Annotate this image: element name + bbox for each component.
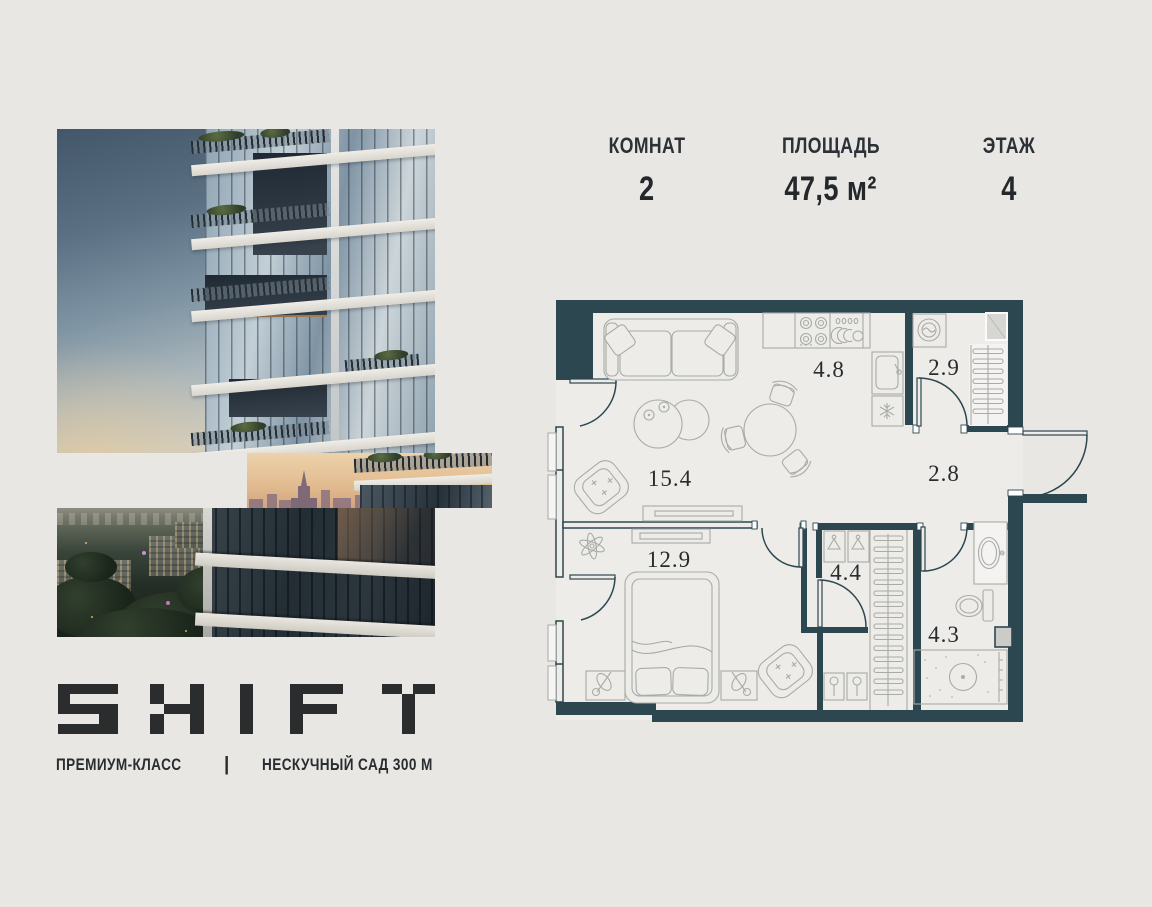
facade-slab xyxy=(195,612,435,637)
room-label-bathroom: 4.3 xyxy=(928,622,960,647)
room-label-bedroom: 12.9 xyxy=(647,547,691,572)
stat-area-value: 47,5 м² xyxy=(785,170,877,209)
brand-logo xyxy=(56,683,438,737)
floor-plan: 4.8 2.9 15.4 2.8 12.9 4.4 4.3 xyxy=(538,288,1098,744)
skyline-building xyxy=(249,499,263,508)
photo-cityscape xyxy=(57,508,435,637)
tower-facade-strip xyxy=(360,453,492,508)
room-label-hallway: 2.8 xyxy=(928,461,960,486)
bed xyxy=(625,572,719,703)
room-label-living: 15.4 xyxy=(648,466,692,491)
stat-floor: ЭТАЖ 4 xyxy=(976,133,1041,209)
balcony-plants xyxy=(423,453,451,460)
brand-tagline: ПРЕМИУМ-КЛАСС | НЕСКУЧНЫЙ САД 300 М xyxy=(56,755,438,777)
room-label-laundry: 2.9 xyxy=(928,355,960,380)
room-label-wardrobe: 4.4 xyxy=(830,560,862,585)
balcony-plants xyxy=(260,129,291,139)
msu-tower-silhouette xyxy=(291,498,317,508)
tower-facade-dark xyxy=(203,508,435,637)
sofa xyxy=(603,319,738,380)
photo-skyline xyxy=(247,453,492,508)
tower-facade xyxy=(205,129,435,453)
bathroom-shaft xyxy=(995,627,1012,647)
room-label-kitchen: 4.8 xyxy=(813,357,845,382)
facade-corner-edge xyxy=(331,129,339,453)
skyline-building xyxy=(267,494,277,508)
skyline-building xyxy=(333,498,351,508)
towel-radiator xyxy=(969,344,1007,426)
skyline-building xyxy=(321,490,330,508)
stat-area: ПЛОЩАДЬ 47,5 м² xyxy=(770,133,892,209)
balcony-rail xyxy=(354,453,492,473)
tree xyxy=(65,552,117,582)
balcony-plants xyxy=(367,453,401,463)
msu-tower-silhouette xyxy=(298,486,310,498)
stat-rooms-value: 2 xyxy=(639,170,655,209)
sunset-reflection xyxy=(338,508,435,567)
stat-floor-value: 4 xyxy=(1001,170,1017,209)
tagline-premium: ПРЕМИУМ-КЛАСС xyxy=(56,755,182,775)
msu-tower-silhouette xyxy=(301,470,307,486)
logo-letters xyxy=(58,684,435,734)
stat-floor-label: ЭТАЖ xyxy=(983,133,1035,159)
tagline-location: НЕСКУЧНЫЙ САД 300 М xyxy=(262,755,433,775)
tagline-divider: | xyxy=(224,754,229,776)
stat-rooms: КОМНАТ 2 xyxy=(599,133,695,209)
stat-area-label: ПЛОЩАДЬ xyxy=(782,133,880,159)
city-lights xyxy=(85,542,87,544)
photo-tower xyxy=(57,129,435,453)
bathroom-sink xyxy=(974,522,1007,584)
entrance-door xyxy=(1023,431,1087,497)
glass-curtain-wall xyxy=(360,485,492,508)
stat-rooms-label: КОМНАТ xyxy=(609,133,686,159)
